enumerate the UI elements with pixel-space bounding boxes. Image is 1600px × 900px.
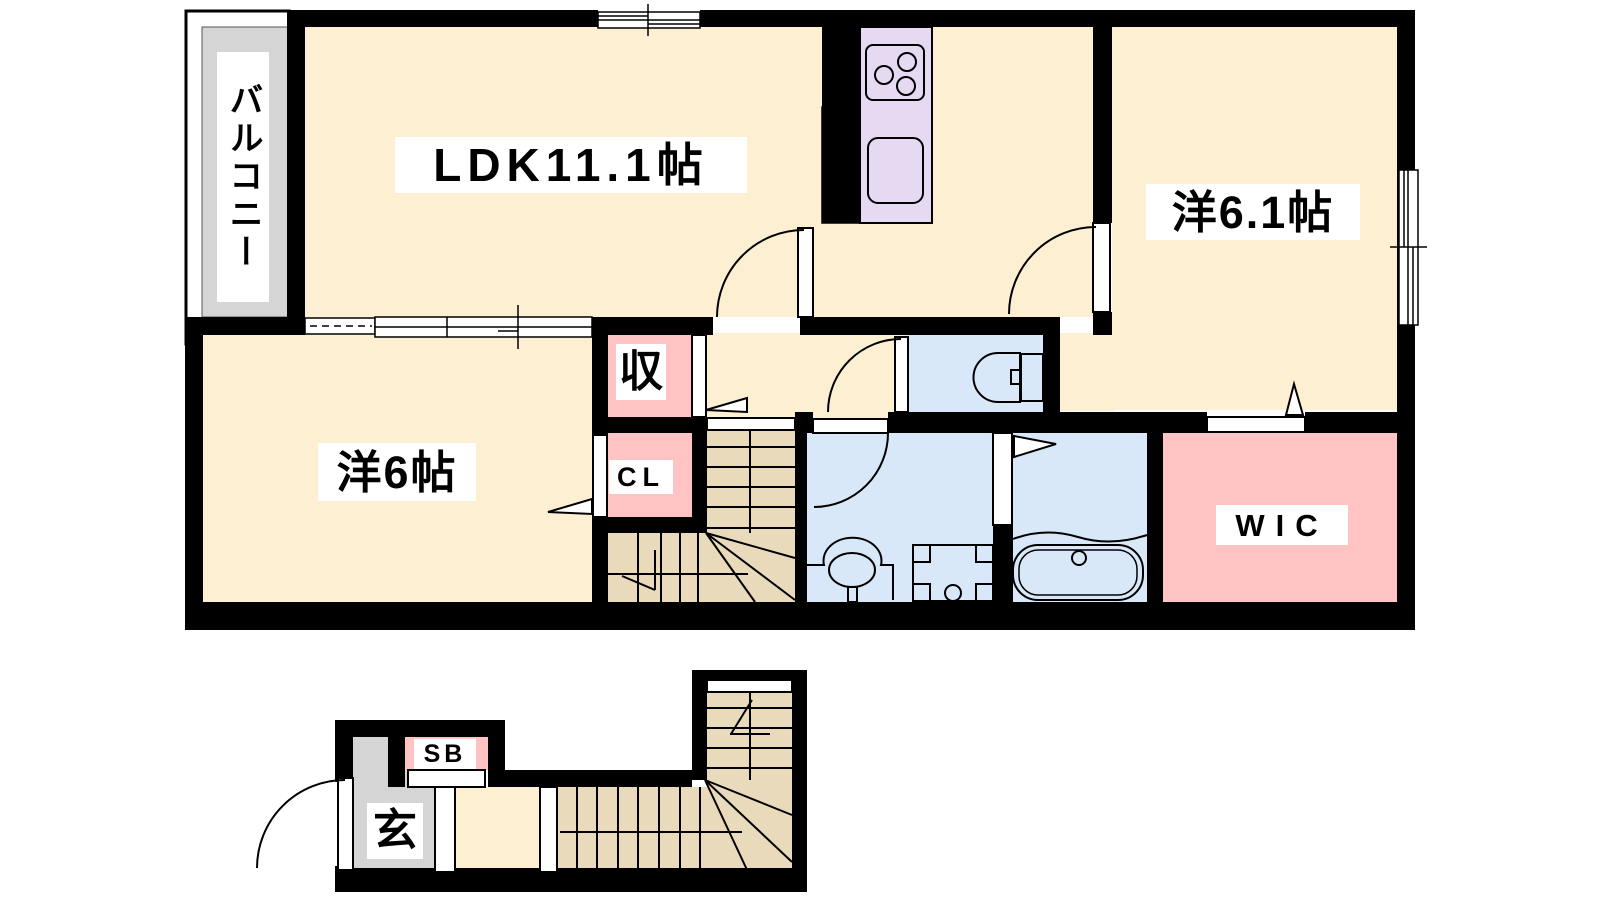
bathroom-floor: [1013, 433, 1147, 602]
room-label-bedroom2: 洋6帖: [318, 443, 476, 501]
room-label-ldk: LDK11.1帖: [395, 137, 747, 193]
door-entrance: [257, 778, 353, 870]
room-label-balcony: バルコニー: [217, 52, 269, 302]
stairs2f-edge: [707, 418, 795, 430]
room-label-entrance: 玄: [367, 803, 423, 859]
washroom-floor: [807, 433, 993, 602]
kitchen-cabinet-panel: [822, 107, 860, 223]
shoebox-shelf: [408, 770, 485, 787]
room-label-shoebox: SB: [414, 739, 476, 769]
room-label-storage: 収: [616, 344, 666, 400]
floors: [186, 11, 1397, 872]
room-label-wic: WIC: [1216, 505, 1348, 545]
toilet-floor: [908, 333, 1043, 417]
entrance-step: [435, 787, 455, 872]
floor-plan-page: バルコニー LDK11.1帖 洋6.1帖 洋6帖 収 CL WIC SB 玄: [0, 0, 1600, 900]
room-label-bedroom1: 洋6.1帖: [1146, 184, 1360, 240]
stairs1f-top-edge: [707, 680, 792, 692]
stairs2f-lower-floor: [608, 533, 707, 602]
kitchen-sink-icon: [868, 138, 923, 203]
stairs1f-lower-floor: [557, 787, 707, 872]
bedroom1-floor-ext: [1060, 333, 1114, 411]
room-label-closet: CL: [609, 460, 673, 494]
stairs1f-first-step: [540, 787, 557, 872]
